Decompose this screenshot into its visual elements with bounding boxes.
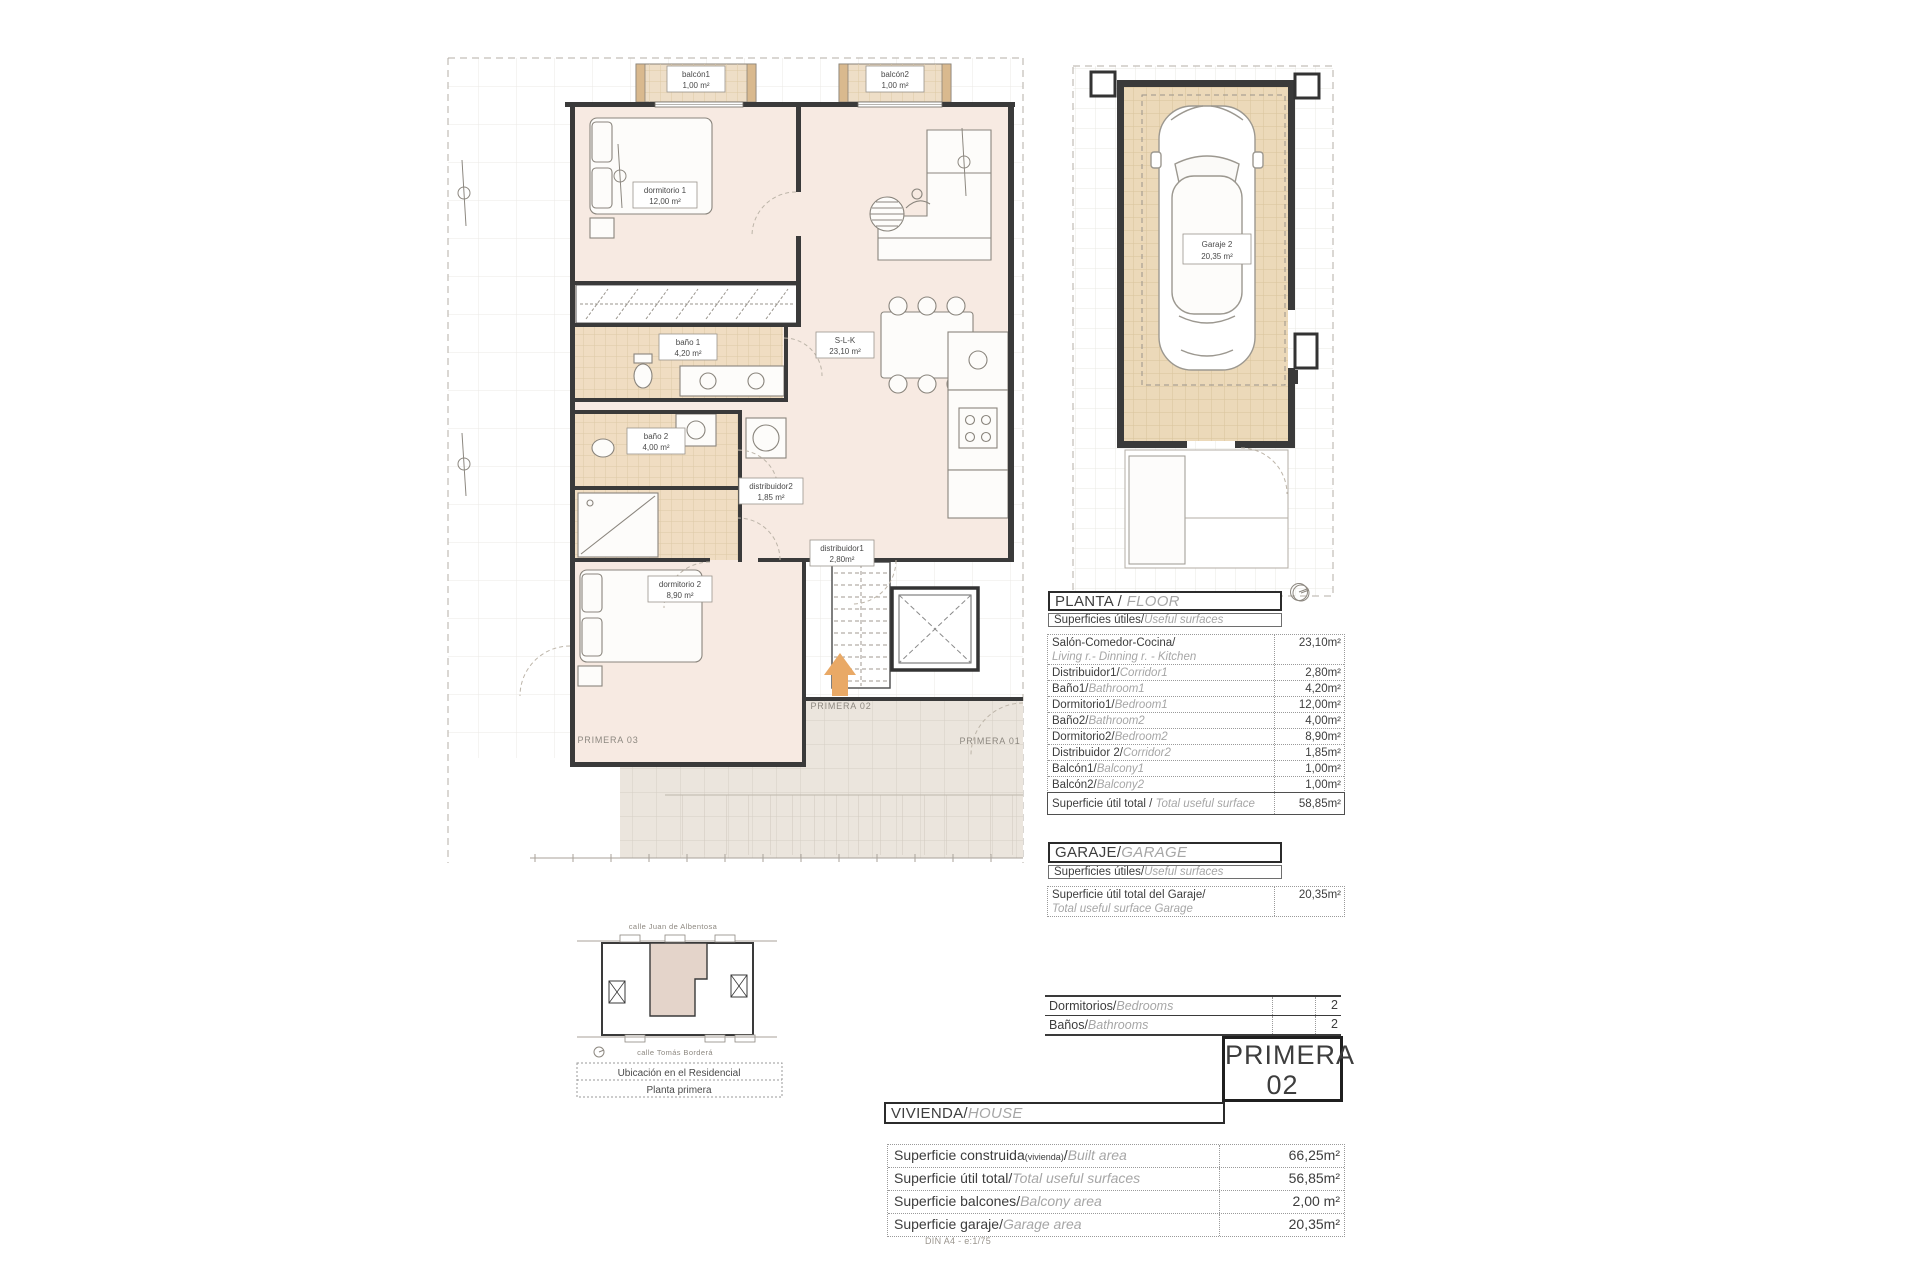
room-label-dormitorio2: dormitorio 2 8,90 m² <box>648 576 712 602</box>
svg-text:1,00 m²: 1,00 m² <box>881 81 908 90</box>
svg-text:baño 2: baño 2 <box>644 432 669 441</box>
table-row: Baño2/Bathroom2 4,00m² <box>1048 712 1344 728</box>
street-bottom-label: calle Tomás Borderá <box>637 1048 713 1057</box>
svg-text:2,80m²: 2,80m² <box>830 555 855 564</box>
garage-surfaces-table: Superficie útil total del Garaje/Total u… <box>1047 886 1345 917</box>
table-row: Distribuidor1/Corridor1 2,80m² <box>1048 664 1344 680</box>
closet <box>576 285 798 323</box>
garage-plan: Garaje 2 20,35 m² <box>1055 48 1367 624</box>
planta-header: PLANTA / FLOOR <box>1048 591 1282 611</box>
svg-text:baño 1: baño 1 <box>676 338 701 347</box>
garaje-subheader: Superficies útiles/Useful surfaces <box>1048 865 1282 879</box>
svg-text:Garaje 2: Garaje 2 <box>1202 240 1233 249</box>
site-caption-line2: Planta primera <box>646 1085 711 1096</box>
room-label-slk: S-L-K 23,10 m² <box>816 332 874 358</box>
garaje-title-en: GARAGE <box>1121 844 1187 861</box>
svg-text:balcón1: balcón1 <box>682 70 711 79</box>
planta-title-es: PLANTA / <box>1055 593 1127 610</box>
unit-badge-line2: 02 <box>1225 1070 1340 1100</box>
svg-text:4,20 m²: 4,20 m² <box>674 349 701 358</box>
apartment-floor-plan: balcón1 1,00 m² balcón2 1,00 m² dormitor… <box>440 48 1045 880</box>
vivienda-header: VIVIENDA/HOUSE <box>884 1102 1225 1124</box>
table-row: Salón-Comedor-Cocina/Living r.- Dinning … <box>1048 635 1344 664</box>
table-row: Superficie construida(vivienda)/Built ar… <box>888 1145 1344 1167</box>
garaje-subtitle-en: Useful surfaces <box>1144 866 1223 878</box>
table-row: Dormitorio2/Bedroom2 8,90m² <box>1048 728 1344 744</box>
scale-note: DIN A4 - e:1/75 <box>925 1236 991 1246</box>
svg-text:distribuidor2: distribuidor2 <box>749 482 793 491</box>
svg-text:8,90 m²: 8,90 m² <box>666 591 693 600</box>
site-building <box>602 935 755 1042</box>
svg-text:balcón2: balcón2 <box>881 70 910 79</box>
unit-badge-line1: PRIMERA <box>1225 1040 1340 1070</box>
vivienda-title-es: VIVIENDA/ <box>891 1105 968 1122</box>
svg-text:20,35 m²: 20,35 m² <box>1201 252 1233 261</box>
unit-label-primera-01: PRIMERA 01 <box>959 736 1020 746</box>
garage-lower-area <box>1125 448 1288 568</box>
room-label-dormitorio1: dormitorio 1 12,00 m² <box>633 182 697 208</box>
table-row: Dormitorio1/Bedroom1 12,00m² <box>1048 696 1344 712</box>
garaje-header: GARAJE/GARAGE <box>1048 842 1282 863</box>
plan-sheet: balcón1 1,00 m² balcón2 1,00 m² dormitor… <box>0 0 1920 1280</box>
svg-text:1,85 m²: 1,85 m² <box>757 493 784 502</box>
counts-table: Dormitorios/Bedrooms 2 Baños/Bathrooms 2 <box>1045 995 1341 1036</box>
room-label-balcon2: balcón2 1,00 m² <box>866 66 924 92</box>
planta-subheader: Superficies útiles/Useful surfaces <box>1048 613 1282 627</box>
room-label-distribuidor2: distribuidor2 1,85 m² <box>739 478 803 504</box>
site-caption-box: Ubicación en el Residencial Planta prime… <box>577 1063 782 1097</box>
planta-subtitle-en: Useful surfaces <box>1144 614 1223 626</box>
table-row: Superficie balcones/Balcony area 2,00 m² <box>888 1190 1344 1213</box>
table-row: Superficie útil total del Garaje/Total u… <box>1048 887 1344 916</box>
room-label-bano2: baño 2 4,00 m² <box>627 428 685 454</box>
unit-label-primera-03: PRIMERA 03 <box>577 735 638 745</box>
svg-text:4,00 m²: 4,00 m² <box>642 443 669 452</box>
garaje-title-es: GARAJE/ <box>1055 844 1121 861</box>
room-label-balcon1: balcón1 1,00 m² <box>667 66 725 92</box>
planta-subtitle-es: Superficies útiles/ <box>1054 614 1144 626</box>
planta-north-icon <box>1288 581 1310 603</box>
table-row: Baño1/Bathroom1 4,20m² <box>1048 680 1344 696</box>
svg-text:S-L-K: S-L-K <box>835 336 856 345</box>
unit-badge: PRIMERA 02 <box>1222 1036 1343 1102</box>
table-row: Baños/Bathrooms 2 <box>1045 1016 1341 1034</box>
table-row-total: Superficie útil total / Total useful sur… <box>1047 792 1345 815</box>
compass-icon <box>594 1047 604 1057</box>
svg-text:distribuidor1: distribuidor1 <box>820 544 864 553</box>
vivienda-title-en: HOUSE <box>968 1105 1023 1122</box>
unit-label-primera-02: PRIMERA 02 <box>810 701 871 711</box>
garaje-subtitle-es: Superficies útiles/ <box>1054 866 1144 878</box>
room-label-distribuidor1: distribuidor1 2,80m² <box>810 540 874 566</box>
house-table: Superficie construida(vivienda)/Built ar… <box>887 1144 1345 1237</box>
garage-label: Garaje 2 20,35 m² <box>1183 234 1251 264</box>
svg-text:23,10 m²: 23,10 m² <box>829 347 861 356</box>
table-row: Distribuidor 2/Corridor2 1,85m² <box>1048 744 1344 760</box>
site-plan: calle Juan de Albentosa calle Tomás Bord… <box>565 915 800 1105</box>
site-caption-line1: Ubicación en el Residencial <box>618 1068 741 1079</box>
table-row: Superficie garaje/Garage area 20,35m² <box>888 1213 1344 1236</box>
floor-surfaces-table: Salón-Comedor-Cocina/Living r.- Dinning … <box>1047 634 1345 815</box>
room-label-bano1: baño 1 4,20 m² <box>659 334 717 360</box>
table-row: Balcón1/Balcony1 1,00m² <box>1048 760 1344 776</box>
elevator <box>892 588 978 670</box>
table-row: Superficie útil total/Total useful surfa… <box>888 1167 1344 1190</box>
svg-text:dormitorio 2: dormitorio 2 <box>659 580 702 589</box>
svg-text:1,00 m²: 1,00 m² <box>682 81 709 90</box>
svg-text:12,00 m²: 12,00 m² <box>649 197 681 206</box>
planta-title-en: FLOOR <box>1127 593 1180 610</box>
table-row: Balcón2/Balcony2 1,00m² <box>1048 776 1344 792</box>
table-row: Dormitorios/Bedrooms 2 <box>1045 997 1341 1016</box>
svg-text:dormitorio 1: dormitorio 1 <box>644 186 687 195</box>
street-top-label: calle Juan de Albentosa <box>629 922 718 931</box>
